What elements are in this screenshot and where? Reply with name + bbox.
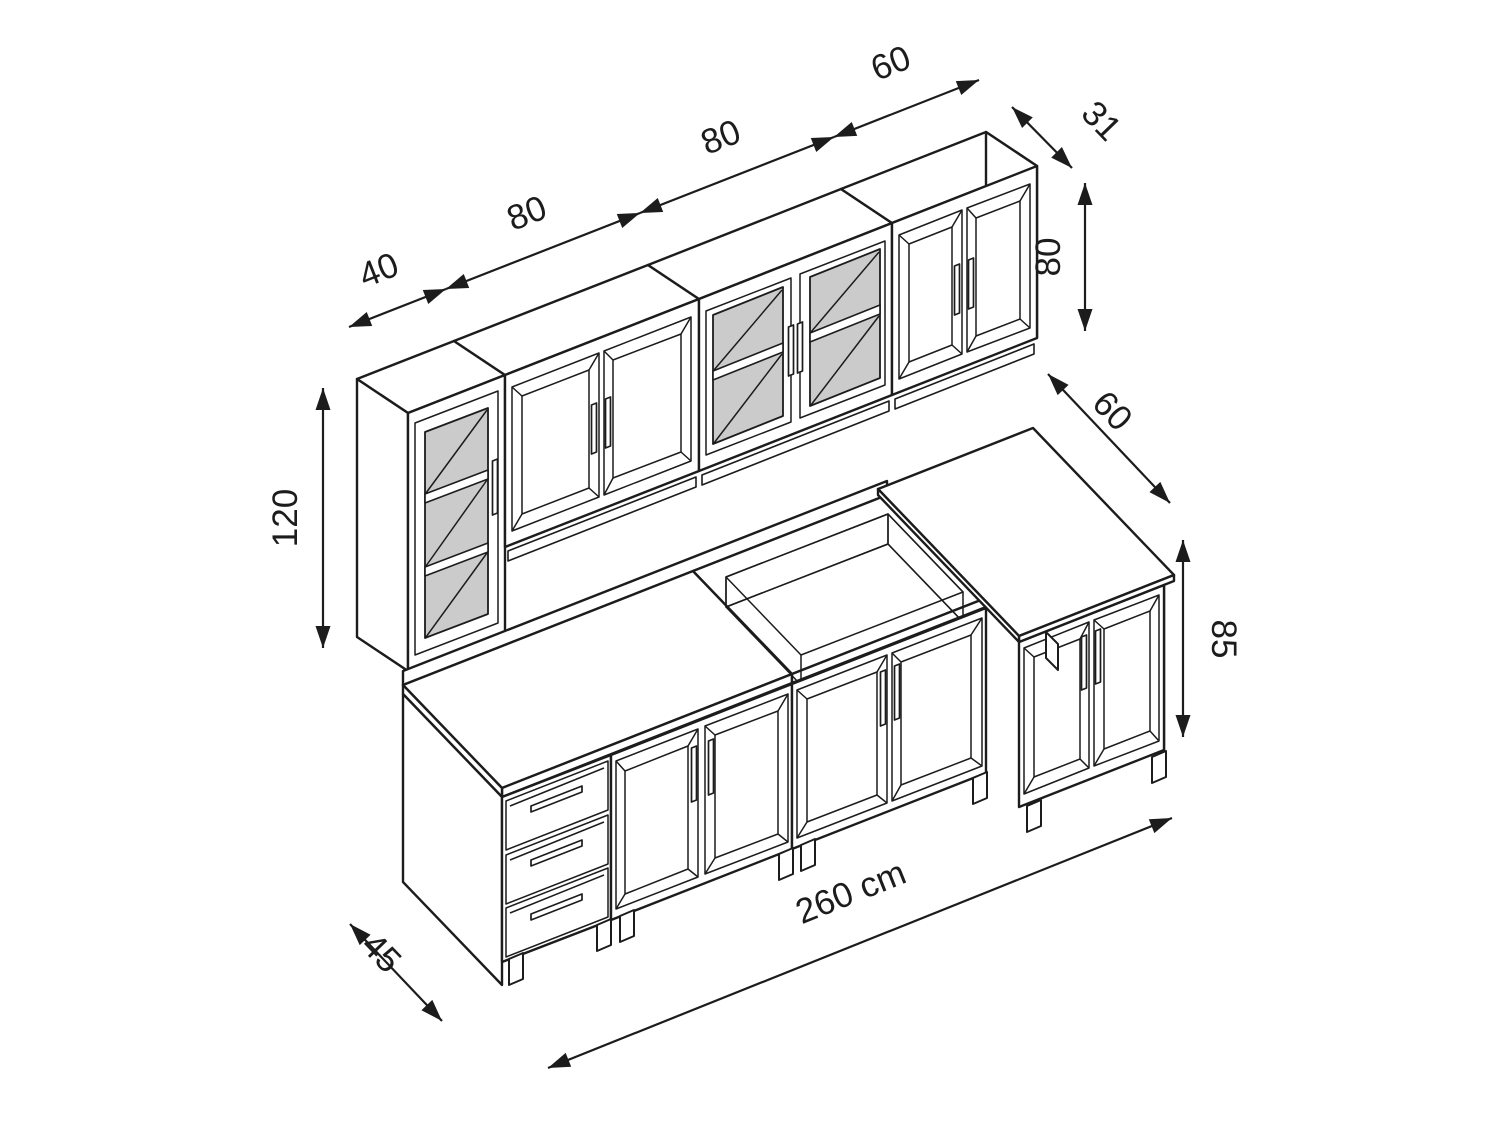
dim-depth-base-left-45: 45 [350,924,442,1021]
cabinet-foot [597,919,611,951]
door-handle [798,322,803,373]
dim-label: 80 [1029,238,1068,277]
dim-label: 85 [1204,620,1243,659]
dim-width-wall-left-80: 80 [446,188,640,289]
dimension-arrowhead [1176,540,1191,562]
dim-label: 60 [1085,383,1140,438]
dim-label: 80 [696,112,747,163]
dimension-arrowhead [1078,309,1093,331]
dim-label: 40 [354,245,405,296]
door-handle [1082,635,1087,690]
dimension-arrowhead [316,388,331,410]
cabinet-foot [801,839,815,871]
dimension-arrowhead [423,289,446,304]
drawing-canvas: 40 80 80 60 31 80 120 60 [0,0,1500,1125]
dim-label: 120 [266,489,305,547]
cabinet-foot [779,848,793,880]
dim-label: 31 [1074,93,1129,148]
door-handle [881,670,886,726]
dimension-arrowhead [811,137,834,152]
dimension-arrowhead [1149,818,1172,833]
dimension-arrowhead [349,312,372,327]
dim-width-wall-glass-80: 80 [640,112,834,213]
kitchen-dimensional-drawing: 40 80 80 60 31 80 120 60 [0,0,1500,1125]
door-handle [709,739,714,795]
dim-label: 60 [866,38,917,89]
dim-height-tall-120: 120 [266,388,331,648]
dimension-arrowhead [1176,715,1191,737]
door-handle [789,325,794,376]
dim-height-base-85: 85 [1176,540,1244,737]
door-handle [1096,629,1101,684]
door-handle [606,397,611,448]
dimension-arrowhead [316,626,331,648]
cabinet-foot [620,910,634,942]
dimension-arrowhead [640,198,663,213]
cabinet-foot [973,772,987,804]
dimension-arrowhead [956,80,979,95]
door-handle [493,459,498,515]
dimension-arrowhead [617,213,640,228]
dim-width-wall-right-60: 60 [834,38,979,137]
door-handle [592,403,597,454]
cabinet-foot [509,953,523,985]
cabinet-foot [1152,751,1166,783]
dim-height-wall-80: 80 [1029,183,1093,331]
door-handle [895,664,900,720]
dimension-arrowhead [1078,183,1093,205]
dim-width-tall-40: 40 [349,245,446,327]
cabinet-foot [1027,800,1041,832]
tall-cabinet-left-side [357,379,408,671]
dim-depth-wall-31: 31 [1012,93,1129,168]
door-handle [955,264,960,315]
door-handle [692,746,697,802]
door-handle [969,258,974,309]
tall-glass-cabinet [357,341,505,671]
dimension-arrowhead [446,274,469,289]
dimension-arrowhead [834,122,857,137]
dim-label: 80 [502,188,553,239]
dimension-arrowhead [548,1053,571,1068]
